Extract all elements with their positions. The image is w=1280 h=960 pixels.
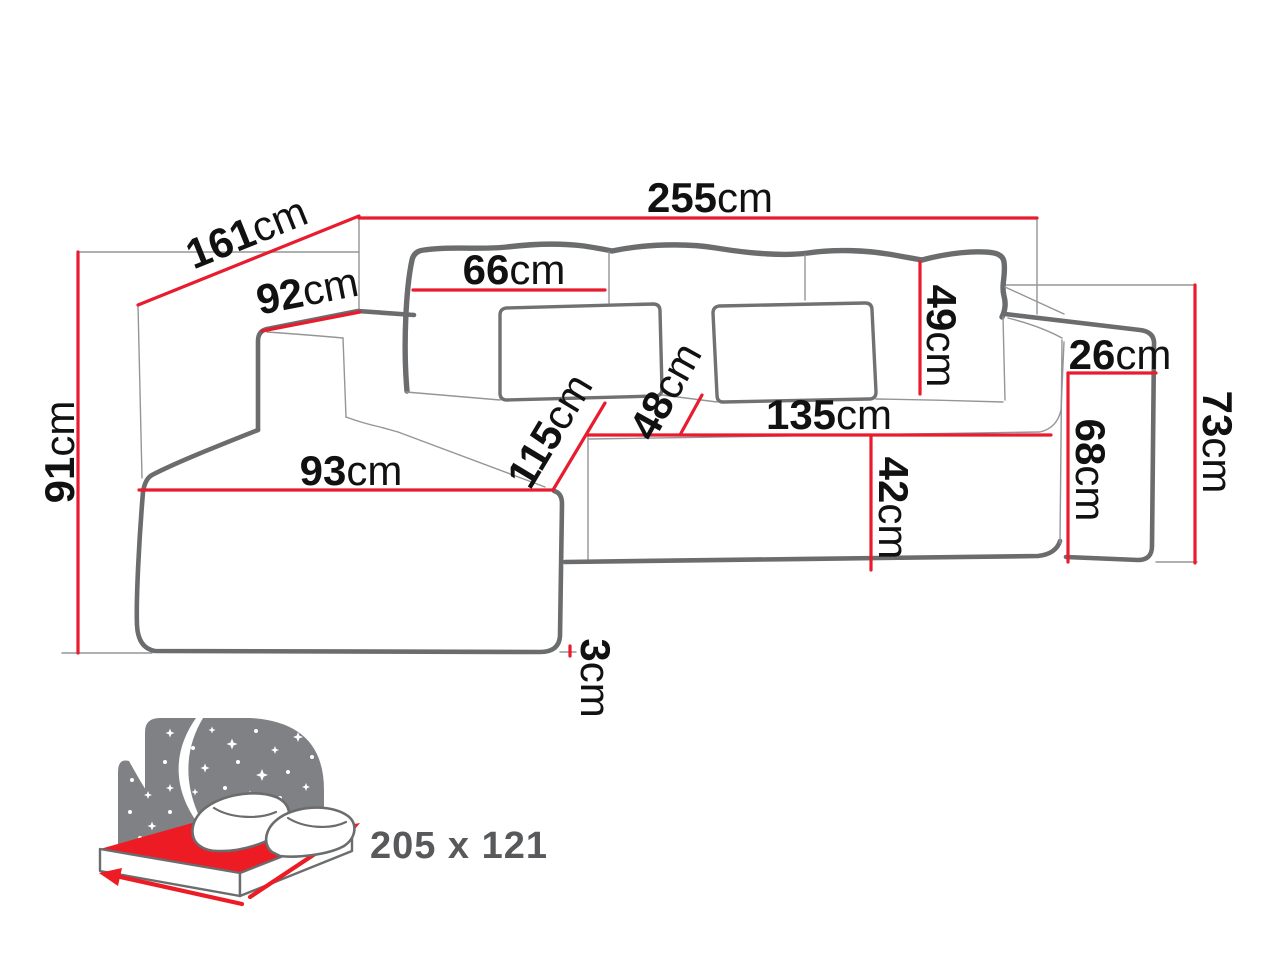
dim-label-135: 135cm xyxy=(766,391,892,438)
right-armrest-inner-edge xyxy=(1060,340,1062,543)
dim-label-91: 91cm xyxy=(36,401,83,504)
sleeping-function-icon: 205 x 121 xyxy=(99,718,548,904)
bed-pillows-icon xyxy=(192,793,354,856)
dim-label-93: 93cm xyxy=(300,447,403,494)
back-cushion-right-edge xyxy=(1003,317,1005,400)
dim-label-255: 255cm xyxy=(647,174,773,221)
dim-label-68: 68cm xyxy=(1067,419,1114,522)
back-cushion-bottom-right xyxy=(876,399,1003,402)
front-pillow-right xyxy=(713,303,876,402)
diagram-canvas: 255cm 161cm 92cm 91cm 66cm 49cm 26cm 73c… xyxy=(0,0,1280,960)
back-cushion-bottom-left xyxy=(406,392,500,400)
dim-label-42: 42cm xyxy=(870,457,917,560)
guide-161-drop xyxy=(138,305,142,478)
right-armrest-back-top xyxy=(1005,287,1064,314)
dim-label-26: 26cm xyxy=(1069,331,1172,378)
seat-bottom-edge xyxy=(565,541,1060,562)
left-armrest-inner-edge xyxy=(343,338,346,417)
sleeping-area-size-label: 205 x 121 xyxy=(370,825,548,867)
dim-label-49: 49cm xyxy=(918,285,965,388)
sofa-dimension-diagram: 255cm 161cm 92cm 91cm 66cm 49cm 26cm 73c… xyxy=(0,0,1280,960)
left-armrest-base xyxy=(346,417,398,432)
dim-label-161: 161cm xyxy=(179,187,314,278)
dim-label-3: 3cm xyxy=(572,638,619,717)
dim-label-66: 66cm xyxy=(463,246,566,293)
dim-label-73: 73cm xyxy=(1194,391,1241,494)
left-armrest-inner-top xyxy=(267,332,343,338)
